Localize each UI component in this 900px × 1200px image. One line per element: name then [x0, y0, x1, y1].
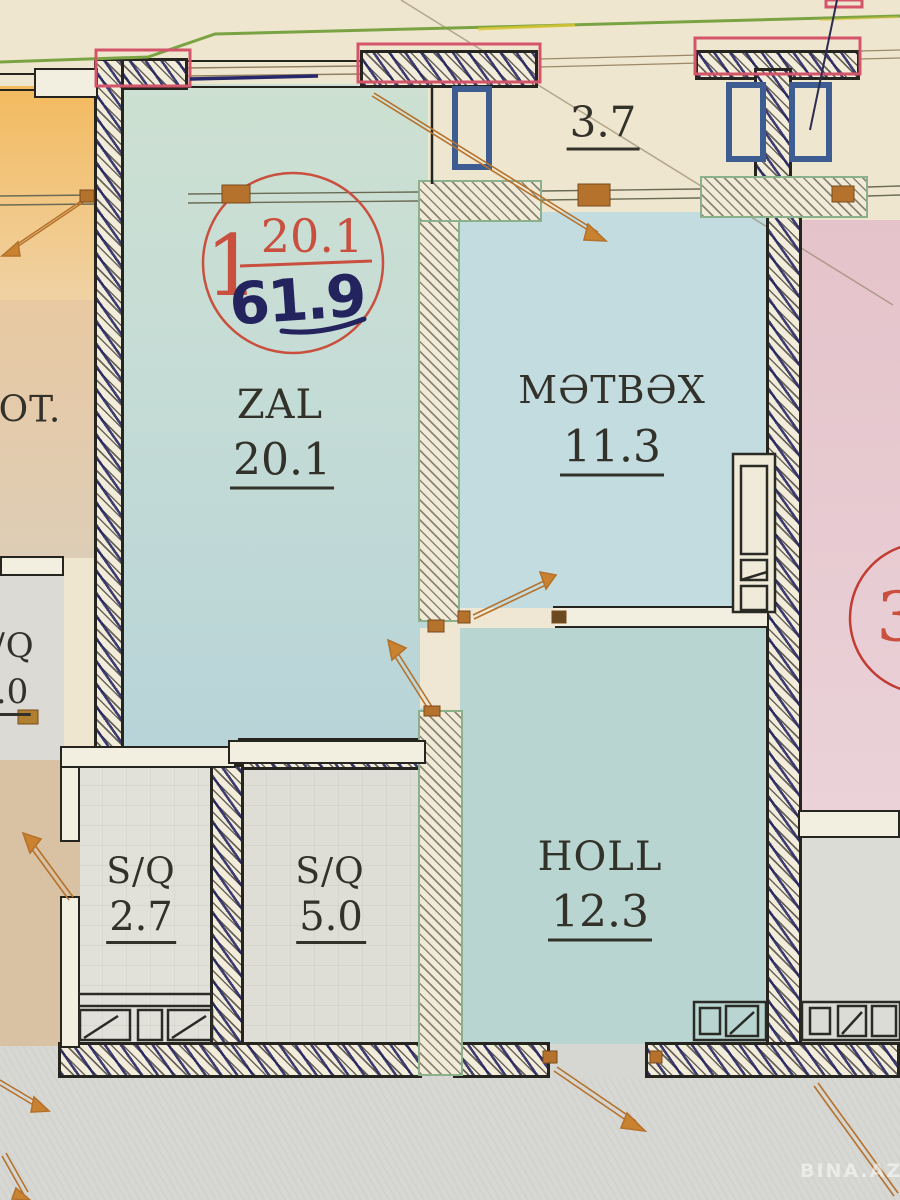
neighbor-bath-area: .0	[0, 672, 31, 712]
overlay-drawing	[0, 0, 900, 1200]
bathroom-fixtures	[78, 994, 212, 1040]
room-holl-area: 12.3	[548, 887, 652, 938]
door-arrow-outside-2	[2, 1153, 30, 1200]
room-sq1-area: 2.7	[106, 894, 176, 940]
door-arrow-outside-1	[0, 1080, 49, 1112]
room-sq2-area-value: 5.0	[296, 894, 366, 944]
door-arrow-zal	[388, 640, 436, 715]
neighbor-ot-label: OT.	[0, 390, 61, 431]
room-sq1-label: S/Q	[106, 852, 175, 893]
room-metbex-label: MƏTBƏX	[518, 368, 706, 412]
room-zal-area-value: 20.1	[230, 435, 334, 490]
right-unit-number: 3	[876, 579, 900, 658]
holl-fixtures	[694, 1002, 900, 1040]
neighbor-bath-label: /Q	[0, 626, 35, 666]
room-zal-label: ZAL	[237, 382, 323, 428]
door-arrows	[0, 93, 898, 1200]
badge-printed-area: 20.1	[261, 209, 363, 263]
room-sq1-area-value: 2.7	[106, 894, 176, 944]
door-arrow-entrance	[554, 1067, 645, 1131]
balcony-area-label: 3.7	[567, 98, 640, 147]
balcony-area-value: 3.7	[567, 98, 640, 151]
watermark: BINA.AZ	[800, 1160, 900, 1182]
neighbor-bath-area-value: .0	[0, 672, 31, 716]
room-sq2-area: 5.0	[296, 894, 366, 940]
room-holl-label: HOLL	[538, 834, 663, 880]
pen-line-window	[190, 76, 318, 79]
kitchen-fixture	[733, 454, 775, 612]
door-arrow-kitchen-holl	[473, 572, 556, 619]
door-arrow-balcony-left	[2, 195, 90, 256]
floor-plan: 1 20.1 61.9 3.7 ZAL 20.1 MƏTBƏX 11.3 HOL…	[0, 0, 900, 1200]
room-metbex-area: 11.3	[560, 422, 664, 473]
room-sq2-label: S/Q	[295, 852, 364, 893]
badge-handwritten-area: 61.9	[227, 261, 367, 338]
door-arrow-neighbor	[23, 833, 73, 900]
room-metbex-area-value: 11.3	[560, 422, 664, 477]
room-zal-area: 20.1	[230, 435, 334, 486]
red-pier-outlines	[96, 0, 862, 86]
room-holl-area-value: 12.3	[548, 887, 652, 942]
